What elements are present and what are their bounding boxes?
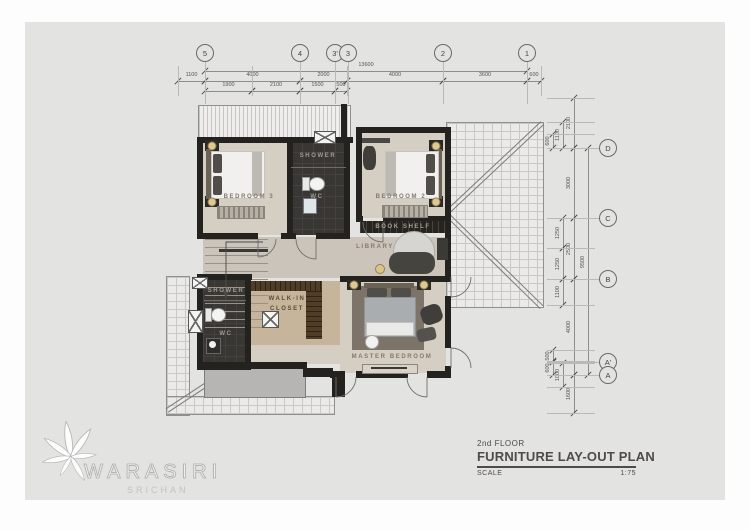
drawing-page: 1360011004000200040003600600190021001500… xyxy=(0,0,750,530)
floor-label: 2nd FLOOR xyxy=(477,439,636,448)
room-label: LIBRARY xyxy=(356,244,394,250)
lamp-icon xyxy=(350,281,359,290)
dim-label: 9500 xyxy=(580,255,586,267)
dim-label: 600 xyxy=(545,363,551,372)
dim-label: 600 xyxy=(545,136,551,145)
dim-label: 1100 xyxy=(186,72,198,78)
dim-label: 3000 xyxy=(566,177,572,189)
dim-label: 1250 xyxy=(555,227,561,239)
dim-label: 1100 xyxy=(555,286,561,298)
dim-label: 2100 xyxy=(270,82,282,88)
extension-line xyxy=(178,66,179,96)
room-label: WALK-IN xyxy=(269,296,306,302)
dim-line xyxy=(443,81,527,82)
grid-bubble-4: 4 xyxy=(291,44,309,62)
dim-label: 1250 xyxy=(555,257,561,269)
title-rule xyxy=(477,466,636,468)
room-label: BOOK SHELF xyxy=(375,224,430,230)
room-label: SHOWER xyxy=(208,288,245,294)
extension-line xyxy=(547,413,595,414)
lamp-icon xyxy=(432,198,441,207)
dim-label: 500 xyxy=(336,82,345,88)
dim-label: 600 xyxy=(529,72,538,78)
dim-line xyxy=(574,375,575,413)
extension-line xyxy=(547,305,595,306)
dim-line xyxy=(347,81,443,82)
dim-label: 1500 xyxy=(311,82,323,88)
room-label: SHOWER xyxy=(300,153,337,159)
dim-line xyxy=(563,279,564,305)
dim-label: 1600 xyxy=(566,388,572,400)
dim-label: 13600 xyxy=(358,62,373,68)
grid-bubble-5: 5 xyxy=(196,44,214,62)
dim-label: 4000 xyxy=(389,72,401,78)
room-label: BEDROOM 3 xyxy=(224,194,275,200)
extension-line xyxy=(547,350,595,351)
dim-label: 3600 xyxy=(479,72,491,78)
dim-label: 500 xyxy=(545,351,551,360)
room-label: WC xyxy=(219,331,232,337)
scale-value: 1:75 xyxy=(620,470,636,477)
scale-label: SCALE xyxy=(477,470,502,477)
grid-bubble-1: 1 xyxy=(518,44,536,62)
dim-line xyxy=(574,98,575,148)
grid-leader xyxy=(560,362,599,363)
grid-leader xyxy=(560,375,599,376)
grid-bubble-D: D xyxy=(599,139,617,157)
grid-leader xyxy=(560,148,599,149)
grid-leader xyxy=(300,62,301,104)
dim-line xyxy=(300,91,335,92)
grid-bubble-2: 2 xyxy=(434,44,452,62)
dim-line xyxy=(205,91,252,92)
grid-bubble-C: C xyxy=(599,209,617,227)
grid-leader xyxy=(560,218,599,219)
room-label: BEDROOM 2 xyxy=(376,194,427,200)
extension-line xyxy=(547,122,595,123)
lamp-icon xyxy=(208,142,217,151)
dim-label: 4000 xyxy=(566,321,572,333)
grid-leader xyxy=(560,279,599,280)
grid-leader xyxy=(443,62,444,104)
grid-bubble-A: A xyxy=(599,366,617,384)
room-label: WC xyxy=(310,194,323,200)
grid-leader xyxy=(348,62,349,104)
extension-line xyxy=(547,363,595,364)
title-block: 2nd FLOOR FURNITURE LAY-OUT PLAN SCALE 1… xyxy=(477,439,636,477)
dim-line xyxy=(563,218,564,248)
extension-line xyxy=(547,134,595,135)
extension-line xyxy=(252,66,253,96)
grid-leader xyxy=(335,62,336,104)
room-label: CLOSET xyxy=(270,306,304,312)
logo-name: WARASIRI xyxy=(84,461,222,484)
drawing-title: FURNITURE LAY-OUT PLAN xyxy=(477,449,636,464)
extension-line xyxy=(547,248,595,249)
room-label: MASTER BEDROOM xyxy=(352,354,433,360)
dim-label: 1100 xyxy=(555,129,561,141)
dim-line xyxy=(252,91,300,92)
dim-label: 1900 xyxy=(222,82,234,88)
dim-label: 2100 xyxy=(566,117,572,129)
lamp-icon xyxy=(208,198,217,207)
extension-line xyxy=(541,66,542,96)
grid-leader xyxy=(205,62,206,104)
dim-line xyxy=(588,148,589,375)
lamp-icon xyxy=(432,142,441,151)
lamp-icon xyxy=(420,281,429,290)
dim-line xyxy=(563,248,564,279)
grid-leader xyxy=(527,62,528,104)
dim-line xyxy=(563,122,564,148)
dim-line xyxy=(574,148,575,218)
extension-line xyxy=(547,98,595,99)
extension-line xyxy=(547,387,595,388)
grid-bubble-B: B xyxy=(599,270,617,288)
grid-bubble-3: 3 xyxy=(339,44,357,62)
dim-label: 2000 xyxy=(317,72,329,78)
logo-subname: SRICHAN xyxy=(127,485,189,495)
dim-line xyxy=(178,81,205,82)
